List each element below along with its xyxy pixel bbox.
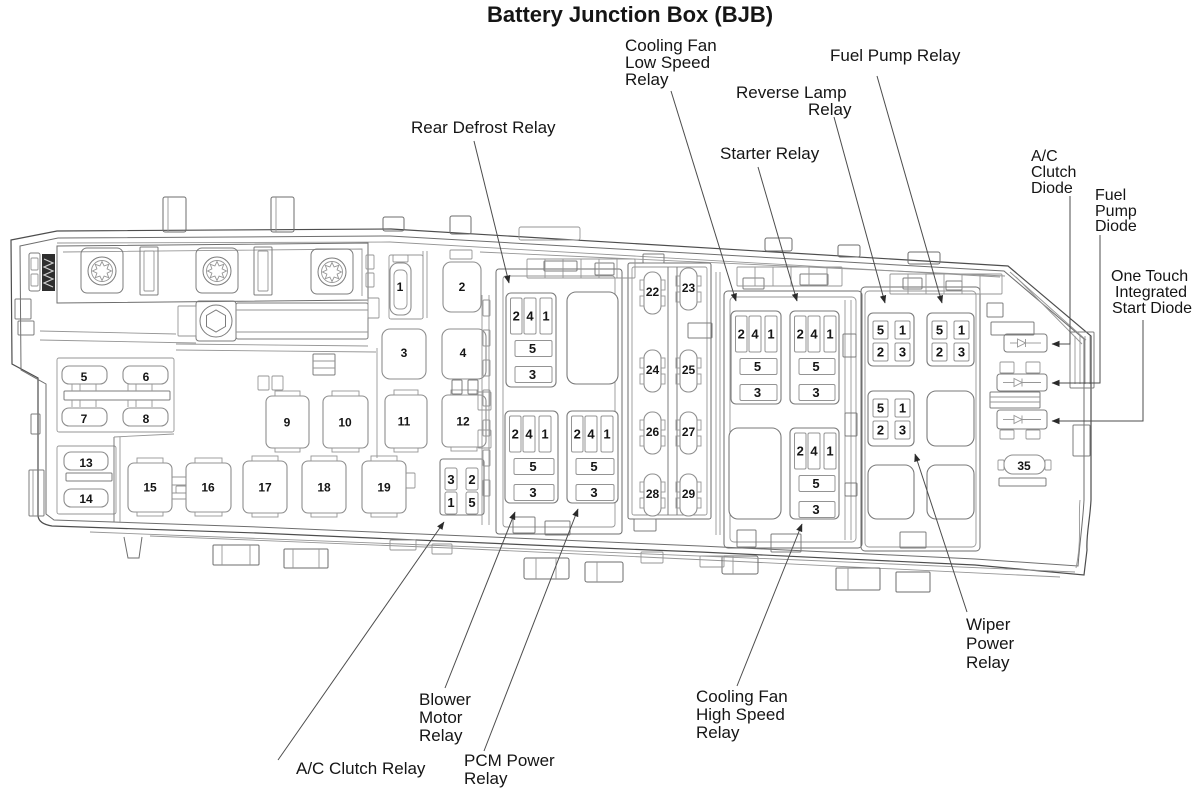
svg-text:Relay: Relay [808,100,852,119]
svg-text:24: 24 [646,363,660,377]
svg-text:4: 4 [810,444,818,459]
svg-text:1: 1 [397,280,404,294]
svg-text:9: 9 [284,416,291,430]
svg-text:3: 3 [754,385,761,400]
svg-text:Battery Junction Box (BJB): Battery Junction Box (BJB) [487,2,773,27]
svg-text:3: 3 [447,472,454,487]
svg-text:A/C: A/C [1031,148,1058,165]
svg-text:13: 13 [79,456,93,470]
svg-text:15: 15 [143,481,157,495]
svg-text:2: 2 [513,309,520,324]
svg-text:2: 2 [512,427,519,442]
svg-text:Relay: Relay [696,723,740,742]
svg-text:4: 4 [587,427,595,442]
svg-text:Fuel: Fuel [1095,187,1126,204]
svg-text:1: 1 [899,401,906,416]
svg-text:Cooling Fan: Cooling Fan [696,687,788,706]
svg-text:3: 3 [590,485,597,500]
svg-text:High Speed: High Speed [696,705,785,724]
svg-text:Clutch: Clutch [1031,164,1076,181]
svg-text:27: 27 [682,425,696,439]
svg-text:5: 5 [877,323,884,338]
svg-text:3: 3 [401,346,408,360]
svg-text:17: 17 [258,481,272,495]
svg-text:One Touch: One Touch [1111,268,1188,285]
svg-text:1: 1 [826,327,833,342]
svg-text:7: 7 [81,412,88,426]
svg-text:2: 2 [797,327,804,342]
svg-text:28: 28 [646,487,660,501]
svg-text:11: 11 [398,415,411,429]
svg-text:A/C Clutch Relay: A/C Clutch Relay [296,759,426,778]
svg-text:3: 3 [958,345,965,360]
svg-text:Start Diode: Start Diode [1112,300,1192,317]
svg-text:8: 8 [143,412,150,426]
svg-text:PCM Power: PCM Power [464,751,555,770]
svg-text:29: 29 [682,487,696,501]
svg-text:Relay: Relay [625,70,669,89]
svg-text:1: 1 [542,309,549,324]
svg-text:Relay: Relay [464,769,508,788]
svg-text:Relay: Relay [966,653,1010,672]
svg-text:2: 2 [574,427,581,442]
svg-text:2: 2 [936,345,943,360]
svg-text:4: 4 [460,346,467,360]
svg-text:Starter Relay: Starter Relay [720,144,820,163]
svg-text:4: 4 [525,427,533,442]
svg-text:3: 3 [899,345,906,360]
svg-text:5: 5 [754,359,761,374]
svg-text:3: 3 [899,423,906,438]
svg-text:3: 3 [529,367,536,382]
svg-text:5: 5 [812,359,819,374]
svg-text:2: 2 [468,472,475,487]
svg-text:4: 4 [751,327,759,342]
svg-text:1: 1 [826,444,833,459]
svg-text:5: 5 [529,459,536,474]
svg-text:5: 5 [812,476,819,491]
svg-text:6: 6 [143,370,150,384]
svg-text:Integrated: Integrated [1115,284,1187,301]
svg-text:16: 16 [201,481,215,495]
svg-text:10: 10 [338,416,352,430]
svg-text:2: 2 [797,444,804,459]
svg-text:2: 2 [738,327,745,342]
svg-text:2: 2 [877,345,884,360]
svg-text:18: 18 [317,481,331,495]
svg-text:Fuel Pump Relay: Fuel Pump Relay [830,46,961,65]
svg-text:Blower: Blower [419,690,471,709]
svg-text:5: 5 [590,459,597,474]
svg-text:4: 4 [810,327,818,342]
svg-text:Rear Defrost Relay: Rear Defrost Relay [411,118,556,137]
svg-text:22: 22 [646,285,660,299]
svg-text:1: 1 [541,427,548,442]
svg-text:5: 5 [936,323,943,338]
svg-text:Diode: Diode [1095,218,1137,235]
svg-text:2: 2 [459,280,466,294]
svg-text:23: 23 [682,281,696,295]
svg-text:25: 25 [682,363,696,377]
svg-text:Relay: Relay [419,726,463,745]
svg-text:5: 5 [81,370,88,384]
svg-text:5: 5 [468,495,475,510]
svg-text:3: 3 [812,385,819,400]
svg-text:2: 2 [877,423,884,438]
svg-text:4: 4 [526,309,534,324]
svg-text:Wiper: Wiper [966,615,1011,634]
svg-text:35: 35 [1017,459,1031,473]
svg-text:26: 26 [646,425,660,439]
svg-text:1: 1 [958,323,965,338]
svg-text:5: 5 [529,341,536,356]
svg-text:14: 14 [79,492,93,506]
svg-text:1: 1 [447,495,454,510]
svg-text:5: 5 [877,401,884,416]
svg-text:Diode: Diode [1031,180,1073,197]
svg-text:1: 1 [899,323,906,338]
svg-text:1: 1 [767,327,774,342]
svg-text:Power: Power [966,634,1015,653]
svg-text:3: 3 [529,485,536,500]
svg-text:3: 3 [812,502,819,517]
svg-text:19: 19 [377,481,391,495]
svg-text:12: 12 [456,415,470,429]
svg-text:Motor: Motor [419,708,463,727]
svg-text:1: 1 [603,427,610,442]
